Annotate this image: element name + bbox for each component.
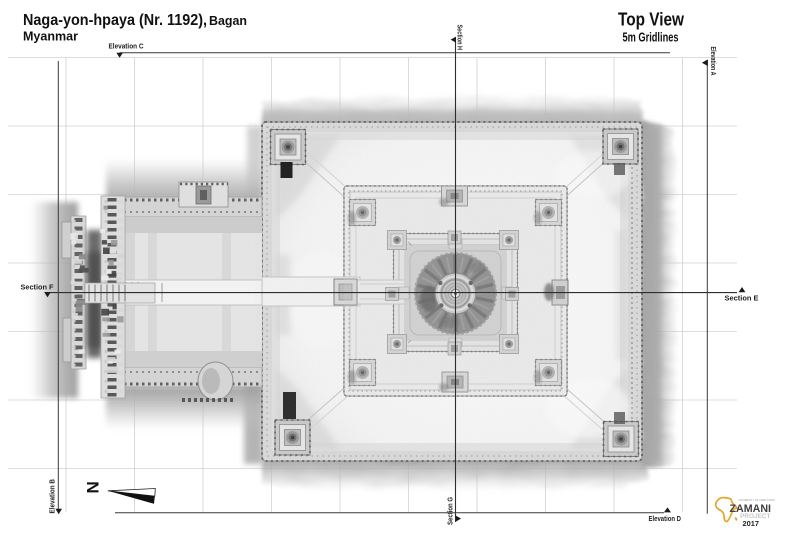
svg-text:Top View: Top View [618, 9, 685, 30]
svg-text:N: N [84, 481, 103, 493]
svg-text:Section H: Section H [456, 25, 463, 51]
svg-text:Section E: Section E [725, 294, 759, 303]
svg-text:Section F: Section F [21, 283, 55, 292]
svg-text:Elevation D: Elevation D [649, 514, 682, 523]
svg-text:2017: 2017 [743, 519, 759, 528]
svg-text:Bagan: Bagan [209, 14, 247, 28]
svg-text:Myanmar: Myanmar [23, 29, 78, 44]
svg-text:Elevation A: Elevation A [709, 47, 718, 76]
svg-text:UNIVERSITY OF CAPE TOWN: UNIVERSITY OF CAPE TOWN [739, 498, 775, 502]
svg-text:Section G: Section G [448, 497, 455, 525]
svg-text:Naga-yon-hpaya (Nr. 1192),: Naga-yon-hpaya (Nr. 1192), [23, 12, 207, 29]
svg-text:5m Gridlines: 5m Gridlines [623, 30, 679, 45]
svg-text:Elevation B: Elevation B [48, 479, 57, 514]
svg-text:Elevation C: Elevation C [109, 42, 144, 51]
